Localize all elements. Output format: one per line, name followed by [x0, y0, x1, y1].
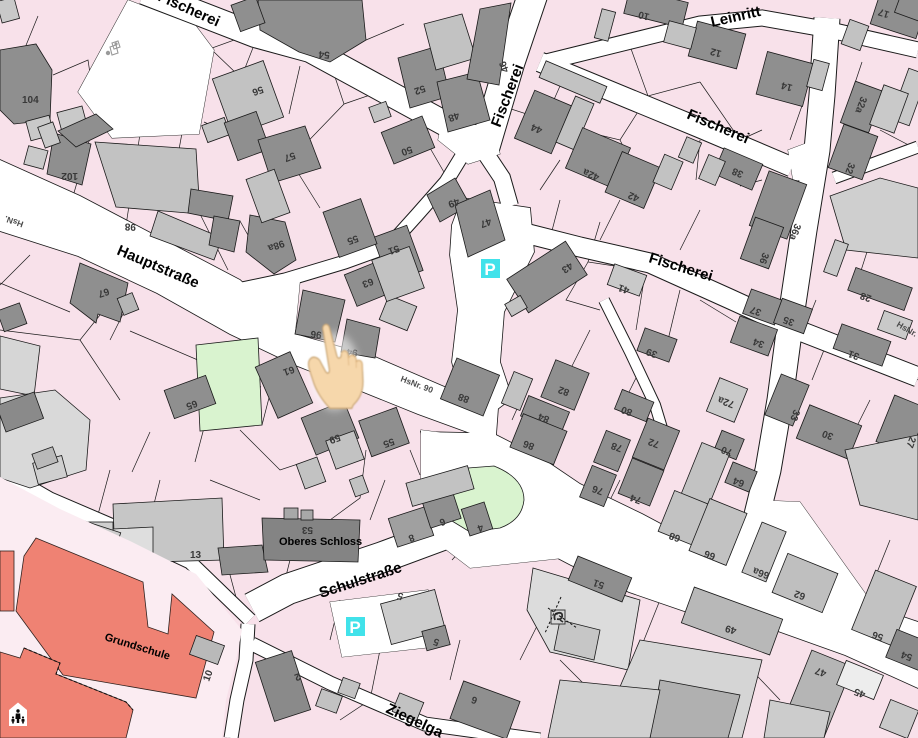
svg-text:98: 98 — [124, 221, 136, 232]
svg-text:13: 13 — [190, 550, 202, 561]
svg-text:Oberes Schloss: Oberes Schloss — [279, 536, 362, 548]
svg-text:54: 54 — [318, 48, 330, 60]
svg-text:96: 96 — [310, 328, 323, 340]
svg-text:53: 53 — [301, 524, 313, 535]
svg-text:P: P — [484, 260, 495, 279]
svg-text:104: 104 — [22, 95, 39, 106]
svg-text:102: 102 — [61, 170, 78, 181]
svg-text:P: P — [349, 618, 360, 637]
